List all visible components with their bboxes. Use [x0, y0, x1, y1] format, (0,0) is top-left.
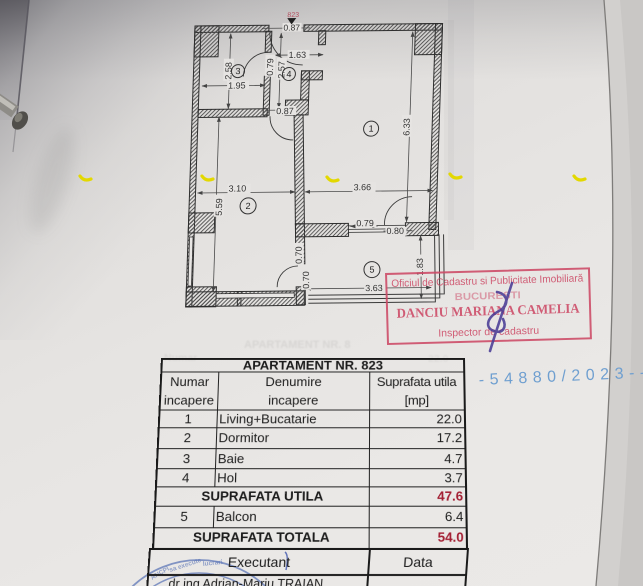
svg-text:5.59: 5.59: [214, 198, 225, 216]
svg-text:0.87: 0.87: [276, 106, 294, 116]
svg-text:BUCUREȘTI: BUCUREȘTI: [455, 290, 522, 303]
svg-text:0.79: 0.79: [265, 58, 276, 76]
svg-text:0.70: 0.70: [301, 271, 311, 289]
svg-text:2.57: 2.57: [276, 61, 287, 79]
svg-text:3: 3: [235, 66, 240, 76]
svg-text:0.80: 0.80: [386, 226, 404, 236]
svg-text:1: 1: [368, 124, 373, 134]
svg-text:DANCIU MARIANA CAMELIA: DANCIU MARIANA CAMELIA: [396, 301, 580, 321]
svg-text:3.66: 3.66: [353, 182, 371, 192]
svg-text:1.95: 1.95: [228, 81, 246, 91]
svg-text:0.70: 0.70: [294, 246, 304, 264]
svg-text:2.58: 2.58: [223, 62, 234, 80]
svg-text:3.63: 3.63: [365, 283, 383, 293]
svg-text:823: 823: [287, 12, 299, 19]
svg-text:0.79: 0.79: [356, 218, 374, 228]
svg-text:2: 2: [245, 201, 250, 211]
svg-text:APARTAMENT NR. 8: APARTAMENT NR. 8: [244, 339, 351, 351]
svg-text:1.63: 1.63: [288, 50, 306, 60]
svg-text:4: 4: [286, 69, 291, 79]
svg-text:5: 5: [369, 265, 374, 275]
svg-text:6.33: 6.33: [401, 118, 412, 136]
svg-text:3.10: 3.10: [228, 183, 246, 193]
